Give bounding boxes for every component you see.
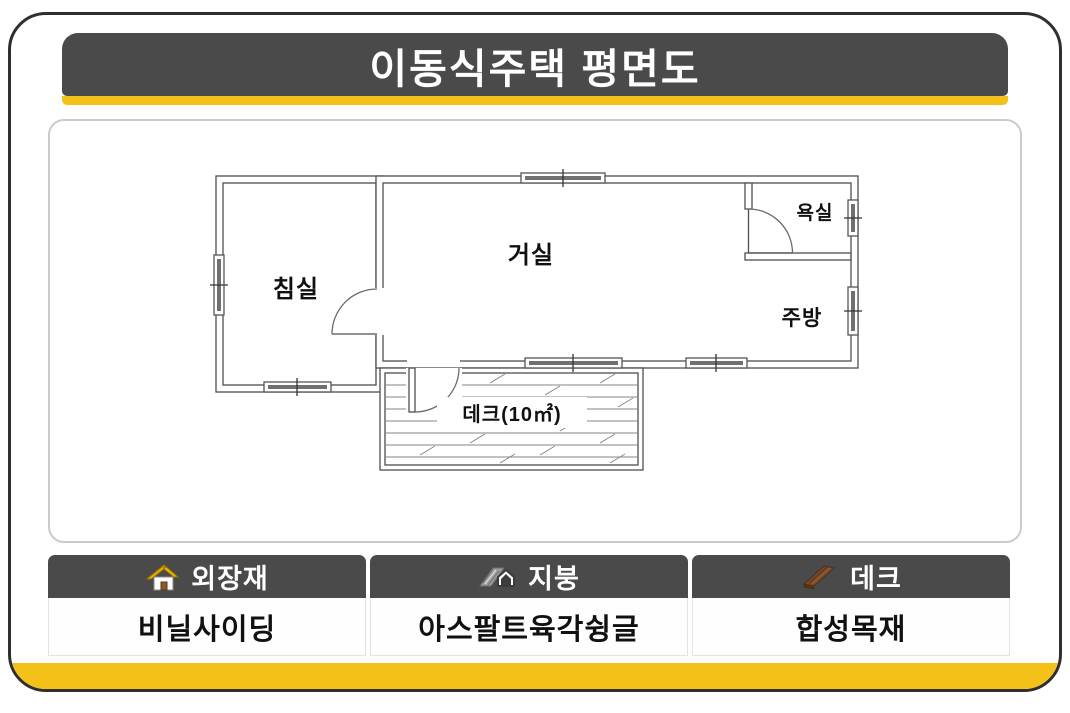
spec-column-roof: 지붕 아스팔트육각슁글 [370, 555, 688, 656]
spec-header-roof: 지붕 [370, 555, 688, 598]
roof-icon [478, 562, 518, 592]
spec-value-deck: 합성목재 [692, 598, 1010, 656]
spec-table: 외장재 비닐사이딩 지붕 아스팔트육각슁글 [48, 555, 1010, 656]
spec-header-exterior: 외장재 [48, 555, 366, 598]
spec-header-label: 데크 [850, 557, 902, 596]
room-label-bedroom: 침실 [246, 269, 346, 304]
deck-icon [800, 562, 840, 592]
spec-column-deck: 데크 합성목재 [692, 555, 1010, 656]
spec-column-exterior: 외장재 비닐사이딩 [48, 555, 366, 656]
room-label-deck: 데크(10㎡) [437, 397, 587, 428]
spec-header-label: 지붕 [528, 557, 580, 596]
infographic-page: 이동식주택 평면도 [0, 0, 1070, 713]
spec-header-label: 외장재 [191, 557, 269, 596]
house-icon [145, 562, 181, 592]
spec-value-roof: 아스팔트육각슁글 [370, 598, 688, 656]
spec-header-deck: 데크 [692, 555, 1010, 598]
room-label-kitchen: 주방 [752, 302, 852, 332]
spec-value-exterior: 비닐사이딩 [48, 598, 366, 656]
room-label-bathroom: 욕실 [775, 198, 855, 225]
room-label-living: 거실 [481, 235, 581, 270]
